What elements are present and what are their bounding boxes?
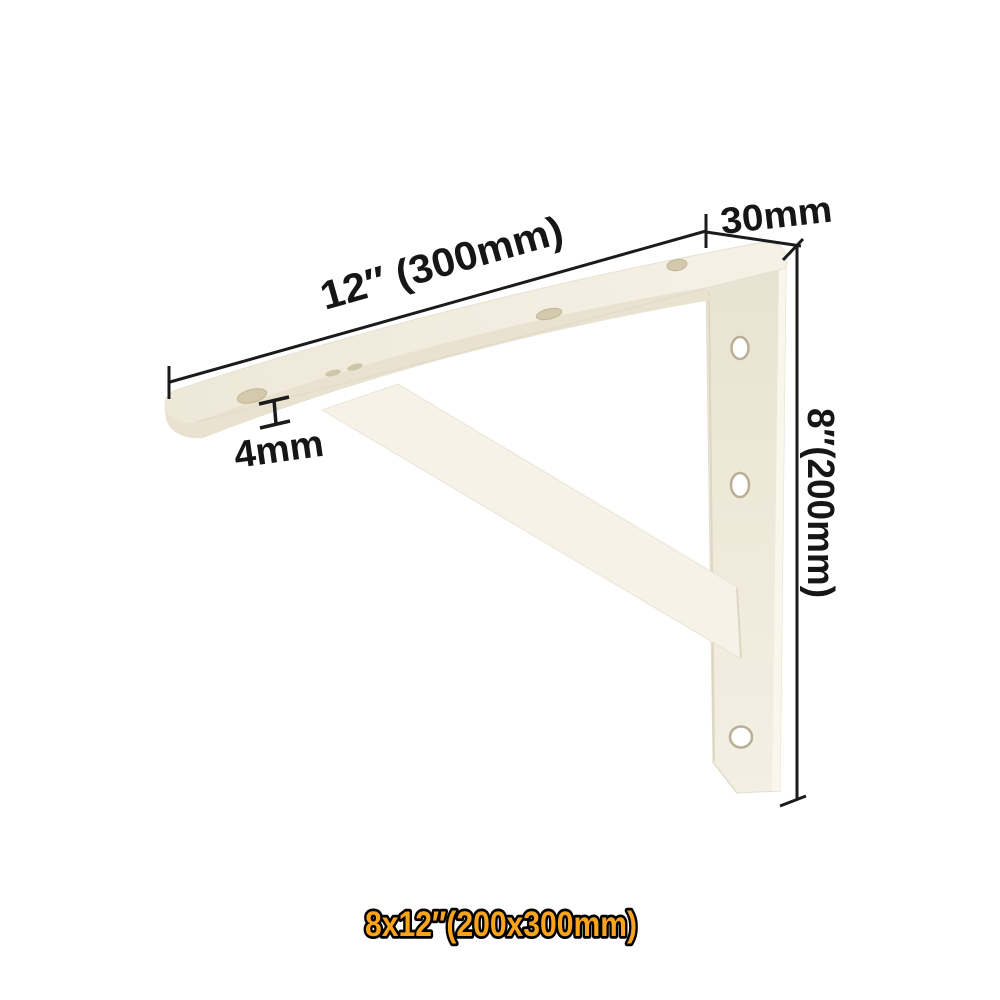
screw-hole-plate-middle (731, 473, 749, 497)
height-dimension-label: 8″(200mm) (799, 408, 841, 598)
dim-width-tick-right (783, 239, 803, 260)
screw-hole-plate-bottom (730, 727, 752, 748)
thickness-marker-stem (274, 400, 276, 424)
dim-height-tick-bottom (780, 796, 806, 806)
width-dimension-label: 30mm (718, 189, 834, 242)
size-caption: 8x12″(200x300mm) (365, 905, 637, 944)
bracket-diagonal-brace (322, 384, 741, 659)
bracket-dimension-diagram: 12″ (300mm) 30mm 4mm 8″(200mm) 8x12″(200… (0, 0, 1000, 1000)
screw-hole-plate-top (732, 337, 749, 359)
product-image: 12″ (300mm) 30mm 4mm 8″(200mm) 8x12″(200… (0, 0, 1000, 1000)
bracket-illustration (165, 242, 787, 793)
thickness-dimension-label: 4mm (231, 423, 326, 477)
